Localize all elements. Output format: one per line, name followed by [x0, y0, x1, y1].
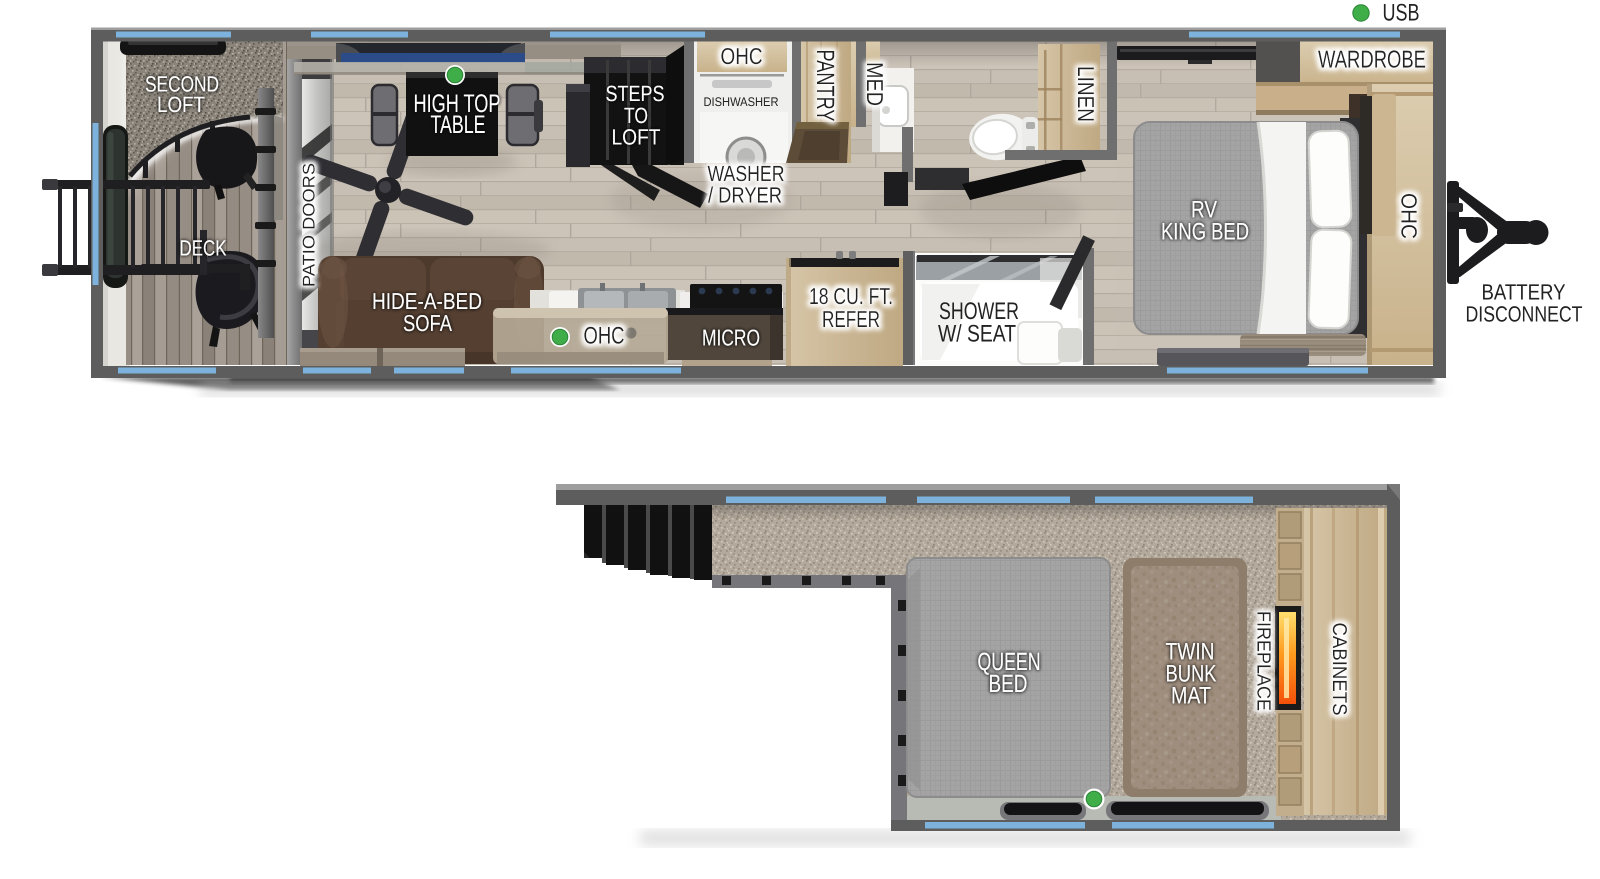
svg-text:DISCONNECT: DISCONNECT: [1466, 302, 1583, 327]
svg-text:PANTRY: PANTRY: [811, 50, 839, 122]
svg-text:LOFT: LOFT: [612, 125, 661, 150]
svg-text:USB: USB: [1383, 0, 1420, 27]
svg-text:OHC: OHC: [1397, 193, 1422, 239]
svg-text:DECK: DECK: [180, 236, 227, 261]
svg-text:REFER: REFER: [822, 306, 880, 332]
svg-text:LOFT: LOFT: [157, 92, 205, 117]
svg-text:W/ SEAT: W/ SEAT: [938, 321, 1016, 348]
svg-text:OHC: OHC: [721, 43, 763, 69]
svg-text:WARDROBE: WARDROBE: [1318, 47, 1426, 74]
svg-text:LINEN: LINEN: [1073, 66, 1099, 122]
svg-text:MED: MED: [862, 62, 888, 106]
svg-text:SOFA: SOFA: [403, 310, 453, 336]
svg-text:BED: BED: [989, 670, 1028, 698]
svg-text:CABINETS: CABINETS: [1328, 623, 1350, 716]
svg-text:MICRO: MICRO: [702, 325, 760, 351]
svg-text:KING BED: KING BED: [1161, 219, 1249, 246]
svg-text:DISHWASHER: DISHWASHER: [704, 95, 779, 109]
svg-text:/ DRYER: / DRYER: [708, 183, 782, 208]
svg-text:FIREPLACE: FIREPLACE: [1253, 611, 1274, 711]
svg-text:OHC: OHC: [584, 323, 625, 350]
svg-text:PATIO DOORS: PATIO DOORS: [300, 163, 319, 287]
svg-text:MAT: MAT: [1171, 683, 1211, 710]
svg-text:TABLE: TABLE: [431, 111, 486, 139]
